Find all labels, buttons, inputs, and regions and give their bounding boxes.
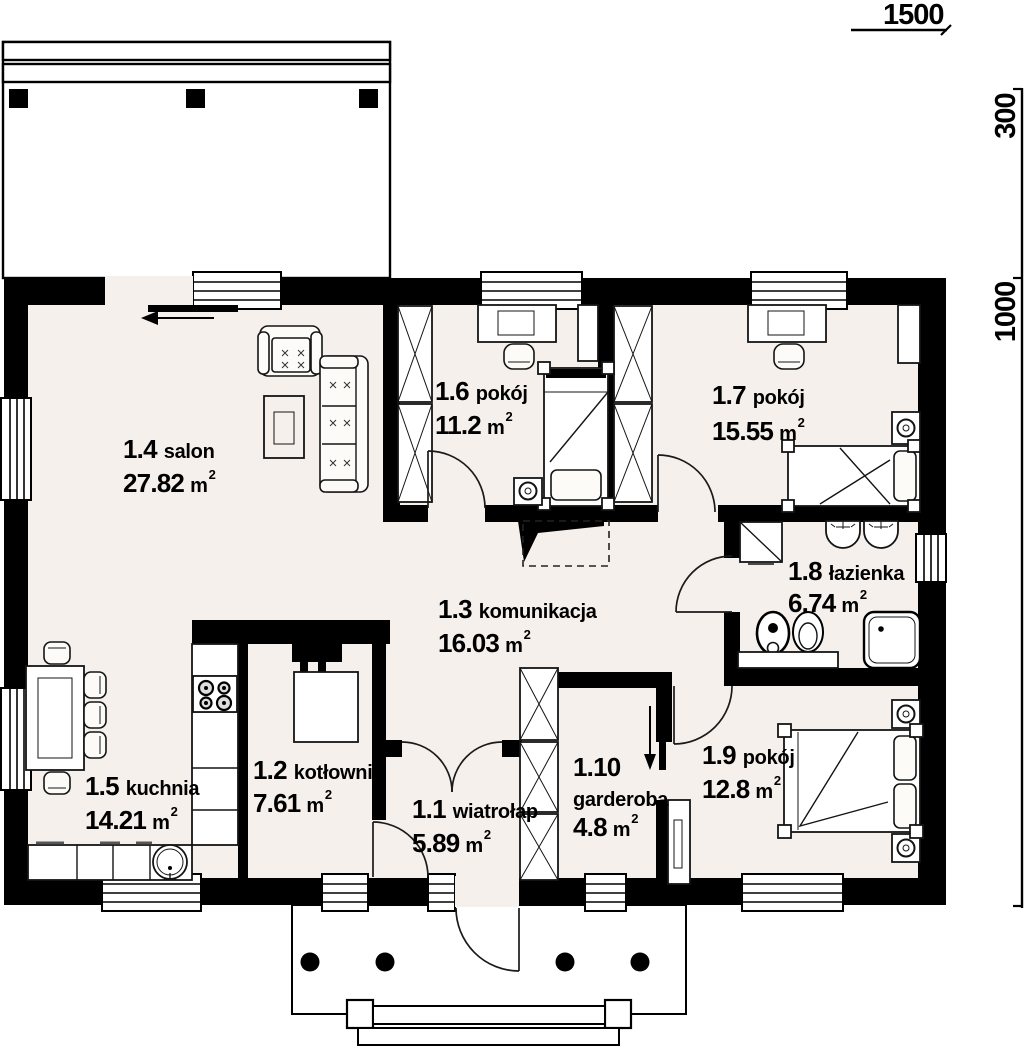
- window-salon-top: [193, 272, 281, 309]
- bed-double: [778, 724, 923, 838]
- dimension-house-depth-label: 1000: [990, 282, 1022, 343]
- wardrobe-room16: [398, 306, 432, 502]
- dimension-width: 1500: [851, 0, 951, 35]
- coffee-table: [264, 396, 304, 458]
- svg-text:garderoba: garderoba: [573, 789, 669, 811]
- terrace-column: [186, 89, 205, 108]
- chimney: [292, 644, 342, 662]
- desk: [478, 305, 556, 342]
- shower: [740, 522, 782, 564]
- wardrobe-hall-strip: [520, 668, 558, 880]
- toilet-ledge: [738, 652, 838, 668]
- svg-text:1.10: 1.10: [573, 752, 621, 782]
- shelf-unit: [898, 305, 920, 363]
- window-room17: [751, 272, 847, 309]
- terrace-column: [359, 89, 378, 108]
- window-wardrobe-room: [585, 874, 626, 911]
- kitchen-sink: [153, 845, 187, 879]
- bed-single: [782, 440, 920, 512]
- porch-column: [301, 953, 320, 972]
- armchair: [258, 326, 322, 376]
- entry-porch: [292, 905, 686, 1045]
- dining-table: [26, 666, 84, 770]
- window-salon-left: [1, 398, 31, 500]
- bidet: [793, 612, 823, 652]
- room-number: 1.4: [123, 434, 158, 464]
- room-name: salon: [164, 441, 215, 463]
- porch-column: [376, 953, 395, 972]
- mirror-wardrobe: [668, 800, 690, 884]
- corner-sofa: [320, 356, 368, 492]
- nightstand: [514, 478, 542, 505]
- porch-column: [631, 953, 650, 972]
- desk-chair: [774, 344, 804, 369]
- entry-door-opening: [455, 876, 519, 907]
- entry-steps: [347, 1000, 631, 1045]
- window-entry-sidelight: [428, 874, 455, 911]
- terrace-column: [9, 89, 28, 108]
- shelf-unit: [578, 305, 598, 361]
- dimension-depth: 300 1000: [990, 88, 1022, 908]
- wardrobe-room17: [614, 306, 652, 502]
- floor-plan-svg: 1.4salon 27.82m2 1.5kuchnia 14.21m2 1.2k…: [0, 0, 1026, 1046]
- washbasin: [826, 521, 860, 548]
- terrace-door-opening: [105, 276, 193, 307]
- kitchen-counter-side: [192, 644, 238, 845]
- bed-single: [538, 362, 614, 510]
- window-room16: [481, 272, 582, 309]
- kitchen-counter-bottom: [28, 843, 192, 880]
- desk: [748, 305, 826, 342]
- dimension-width-label: 1500: [883, 0, 944, 31]
- window-bathroom: [916, 534, 946, 582]
- terrace: [3, 42, 390, 278]
- stove: [193, 676, 237, 712]
- toilet: [757, 612, 789, 654]
- floor-plan-page: 1.4salon 27.82m2 1.5kuchnia 14.21m2 1.2k…: [0, 0, 1026, 1046]
- shower-tray: [864, 612, 920, 668]
- boiler-room-equipment: [294, 662, 358, 742]
- washbasin: [864, 521, 898, 548]
- window-room19: [742, 874, 843, 911]
- porch-column: [556, 953, 575, 972]
- window-boiler-room: [322, 874, 368, 911]
- desk-chair: [504, 344, 534, 369]
- dimension-terrace-depth-label: 300: [990, 93, 1022, 138]
- boiler: [294, 672, 358, 742]
